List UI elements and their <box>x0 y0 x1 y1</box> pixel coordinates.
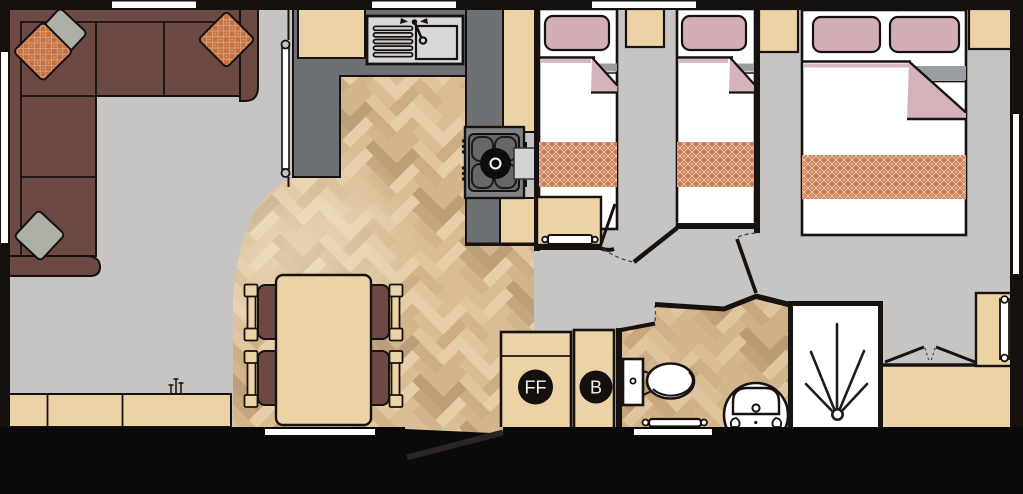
svg-text:B: B <box>590 378 602 398</box>
svg-text:FF: FF <box>525 378 547 398</box>
